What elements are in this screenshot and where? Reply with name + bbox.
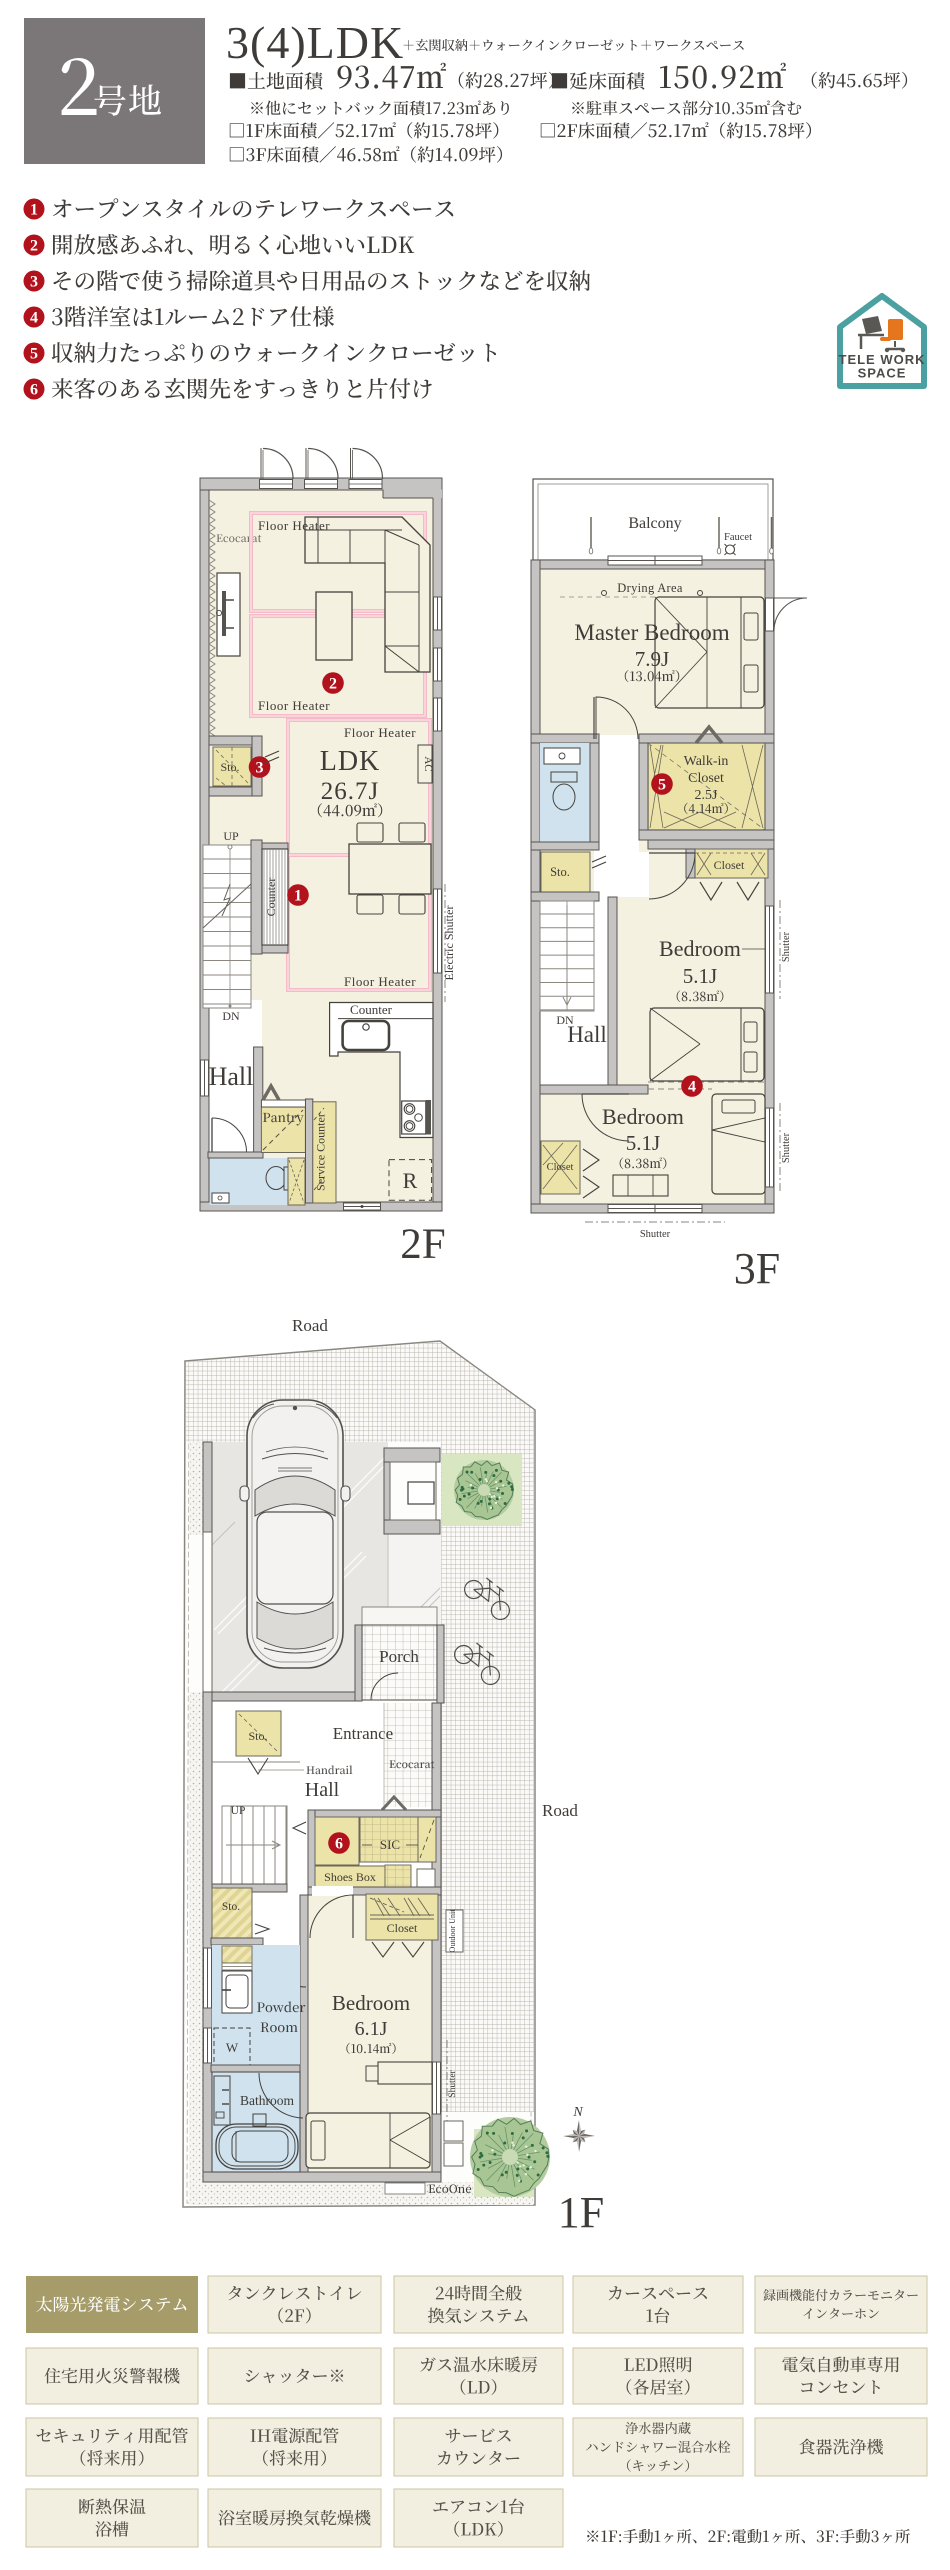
- svg-text:Floor Heater: Floor Heater: [344, 725, 416, 740]
- svg-text:Porch: Porch: [379, 1647, 419, 1666]
- svg-text:Balcony: Balcony: [628, 515, 681, 532]
- svg-text:UP: UP: [223, 829, 239, 843]
- svg-text:Walk-in: Walk-in: [684, 754, 729, 769]
- svg-text:Floor Heater: Floor Heater: [344, 974, 416, 989]
- svg-text:3(4)LDK: 3(4)LDK: [226, 17, 404, 68]
- svg-text:6: 6: [30, 382, 38, 399]
- svg-text:Bedroom: Bedroom: [602, 1104, 684, 1129]
- svg-text:4: 4: [30, 310, 38, 327]
- svg-text:Electric Shutter: Electric Shutter: [442, 906, 456, 981]
- svg-text:Counter: Counter: [350, 1002, 393, 1017]
- svg-text:Floor Heater: Floor Heater: [258, 518, 330, 533]
- svg-text:Shutter: Shutter: [640, 1229, 671, 1240]
- svg-text:3: 3: [30, 274, 38, 291]
- svg-text:Sto.: Sto.: [220, 760, 239, 774]
- svg-text:Sto.: Sto.: [222, 1901, 240, 1913]
- svg-text:Shutter: Shutter: [781, 1132, 792, 1163]
- svg-text:Shutter: Shutter: [781, 931, 792, 962]
- svg-text:Faucet: Faucet: [724, 532, 752, 543]
- svg-text:Road: Road: [292, 1316, 328, 1335]
- svg-text:Service Counter: Service Counter: [314, 1113, 328, 1191]
- svg-text:Outdoor Unit: Outdoor Unit: [448, 1909, 457, 1953]
- svg-text:6.1J: 6.1J: [355, 2018, 388, 2040]
- svg-text:N: N: [572, 2105, 583, 2120]
- svg-text:2.5J: 2.5J: [695, 788, 719, 803]
- svg-text:R: R: [403, 1168, 418, 1193]
- svg-text:Master Bedroom: Master Bedroom: [574, 620, 729, 645]
- svg-text:Closet: Closet: [714, 858, 745, 872]
- svg-text:3F: 3F: [734, 1244, 780, 1293]
- svg-text:5: 5: [658, 777, 666, 794]
- svg-text:DN: DN: [222, 1009, 240, 1023]
- svg-text:4: 4: [688, 1079, 696, 1096]
- svg-text:Drying Area: Drying Area: [617, 581, 683, 595]
- svg-text:Hall: Hall: [305, 1779, 340, 1801]
- svg-text:SIC: SIC: [380, 1837, 400, 1852]
- svg-text:2: 2: [30, 238, 38, 255]
- svg-text:7.9J: 7.9J: [635, 647, 669, 671]
- svg-text:3: 3: [256, 760, 264, 777]
- svg-text:26.7J: 26.7J: [321, 778, 379, 805]
- svg-text:Bathroom: Bathroom: [240, 2093, 294, 2108]
- svg-text:Closet: Closet: [547, 1162, 574, 1173]
- svg-text:5.1J: 5.1J: [683, 964, 717, 988]
- svg-text:Closet: Closet: [688, 771, 724, 786]
- svg-text:SPACE: SPACE: [858, 366, 907, 381]
- svg-text:Hall: Hall: [567, 1022, 607, 1047]
- svg-text:Counter: Counter: [264, 878, 278, 917]
- svg-text:Shutter: Shutter: [448, 2069, 458, 2097]
- svg-text:Road: Road: [542, 1801, 578, 1820]
- svg-text:1: 1: [294, 888, 302, 905]
- svg-text:2F: 2F: [400, 1221, 445, 1268]
- svg-text:Sto.: Sto.: [248, 1729, 267, 1743]
- svg-text:Closet: Closet: [387, 1921, 418, 1935]
- svg-text:Bedroom: Bedroom: [659, 936, 741, 961]
- svg-text:1F: 1F: [558, 2188, 604, 2237]
- svg-text:AC: AC: [422, 756, 434, 771]
- svg-text:5.1J: 5.1J: [626, 1131, 660, 1155]
- svg-text:Floor Heater: Floor Heater: [258, 698, 330, 713]
- svg-text:Shoes Box: Shoes Box: [324, 1870, 376, 1884]
- svg-text:Bedroom: Bedroom: [332, 1991, 410, 2015]
- svg-text:LDK: LDK: [320, 746, 381, 777]
- svg-text:UP: UP: [231, 1805, 246, 1817]
- svg-text:Sto.: Sto.: [550, 865, 570, 879]
- svg-text:5: 5: [30, 346, 38, 363]
- svg-text:1: 1: [30, 202, 38, 219]
- svg-text:2: 2: [329, 676, 337, 693]
- svg-text:Hall: Hall: [209, 1062, 254, 1091]
- svg-text:W: W: [226, 2040, 239, 2055]
- svg-text:6: 6: [335, 1836, 343, 1853]
